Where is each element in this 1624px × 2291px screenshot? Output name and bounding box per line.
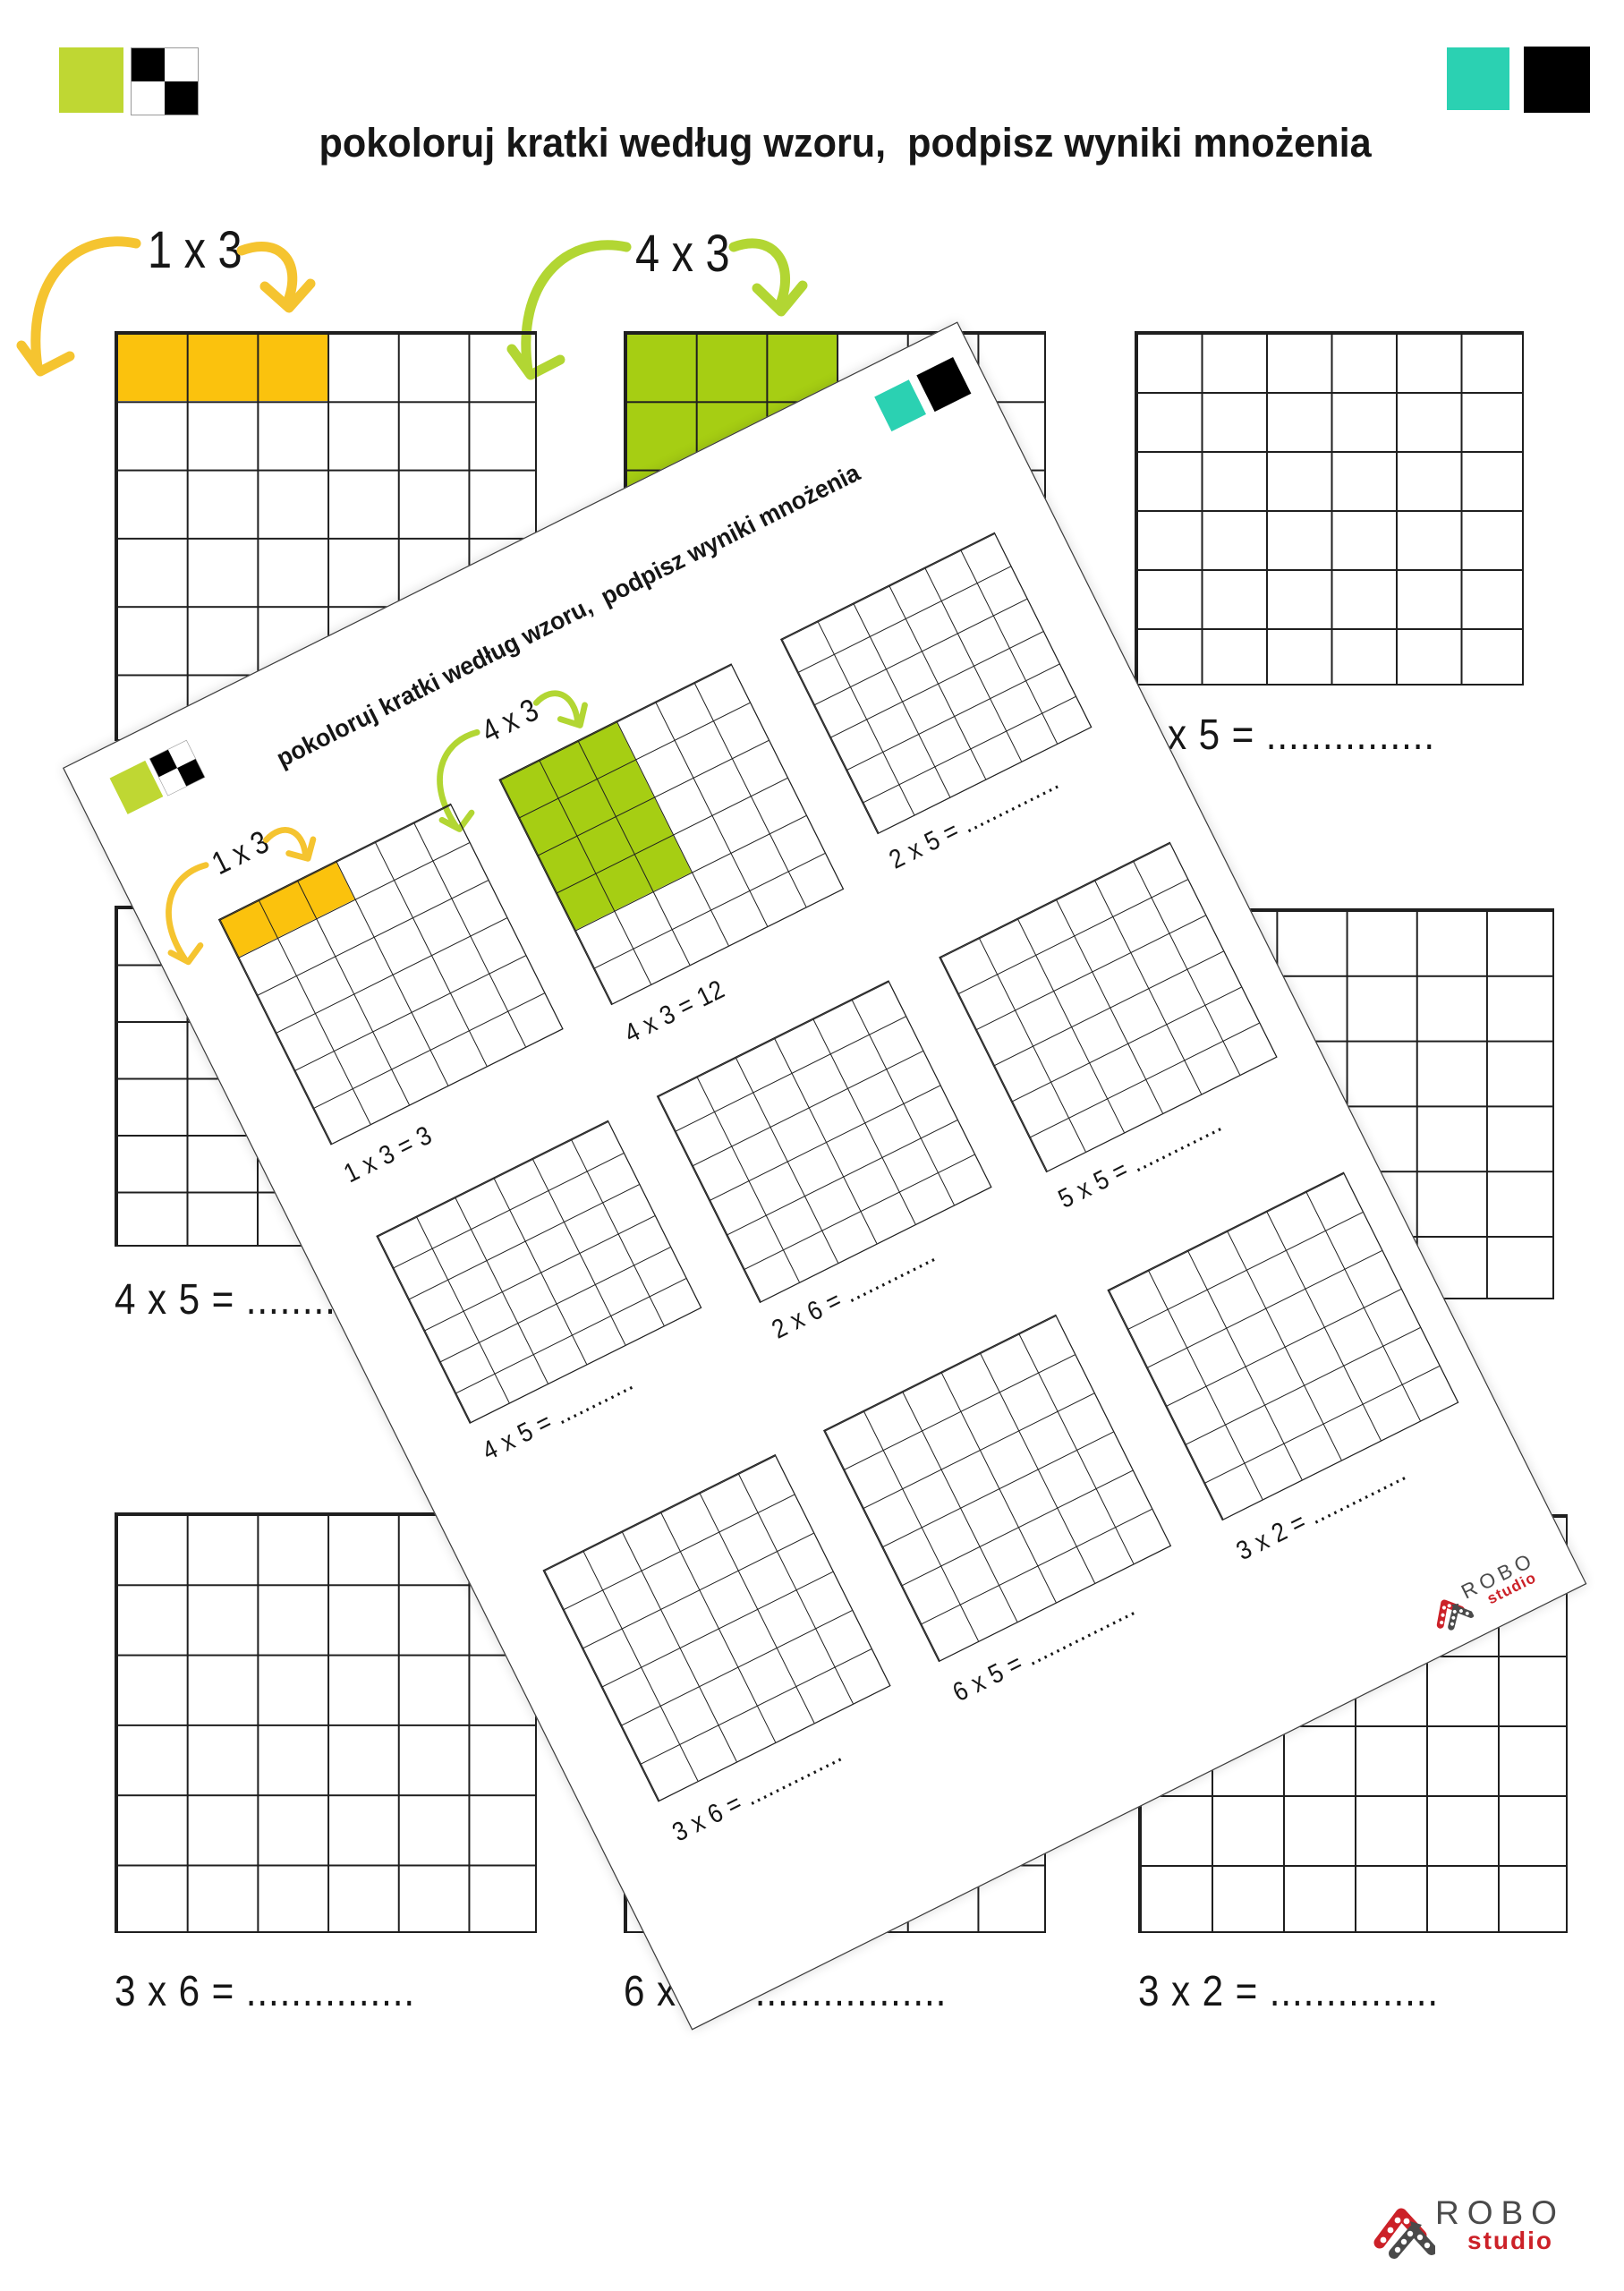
grid-2x6	[657, 980, 992, 1303]
grid-4x5	[376, 1120, 701, 1424]
worksheet-page: pokoloruj kratki według wzoru, podpisz w…	[63, 321, 1586, 2030]
grid-3x2-lines	[1109, 1173, 1458, 1519]
grid-4x5-lines	[378, 1121, 701, 1422]
curved-arrow-icon	[259, 813, 325, 880]
screenshot-frame: pokoloruj kratki według wzoru, podpisz w…	[0, 0, 1624, 2291]
grid-3x2	[1107, 1172, 1458, 1521]
rotated-overlay-worksheet: pokoloruj kratki według wzoru, podpisz w…	[0, 0, 1624, 2291]
grid-5x5	[939, 842, 1278, 1173]
robo-studio-logo: ROBO studio	[1422, 1549, 1543, 1637]
grid-5x5-lines	[940, 843, 1276, 1171]
grid-2x6-lines	[658, 982, 991, 1302]
